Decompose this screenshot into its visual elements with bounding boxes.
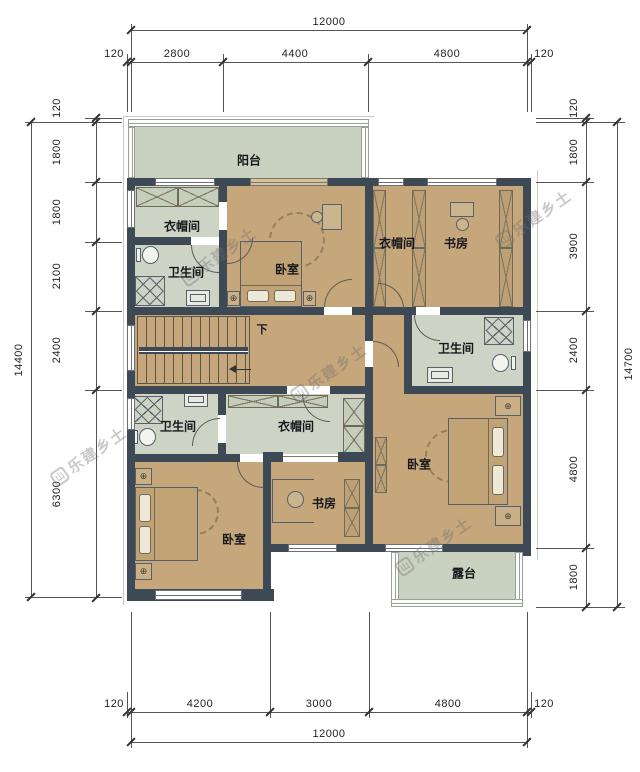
dim-top-seg-0: 120 [104, 48, 124, 60]
chair [287, 491, 304, 508]
window [378, 178, 404, 186]
dimension-line [270, 612, 271, 718]
dimension-line [85, 242, 122, 243]
dimension-line [85, 311, 122, 312]
wall-segment [127, 386, 287, 394]
room-label-cloakroom-nw: 衣帽间 [164, 218, 200, 235]
dimension-line [85, 182, 122, 183]
dimension-line [85, 118, 122, 119]
room-label-cloakroom-south: 衣帽间 [278, 418, 314, 435]
wardrobe [375, 465, 387, 493]
dim-bottom-seg-2: 3000 [306, 698, 332, 710]
wall-segment [127, 307, 324, 315]
dim-right-seg-2: 3900 [568, 233, 580, 259]
wardrobe [178, 187, 219, 207]
nightstand: ⊕ [495, 396, 521, 416]
wardrobe [375, 437, 387, 465]
dimension-line [527, 24, 528, 112]
wardrobe [344, 508, 360, 537]
shower [135, 276, 165, 306]
dim-bottom-overall: 12000 [312, 728, 345, 740]
toilet [492, 354, 516, 372]
wall-segment [218, 394, 226, 415]
dim-left-seg-1: 1800 [51, 139, 63, 165]
window [523, 320, 531, 352]
dimension-line [536, 607, 625, 608]
room-label-bathroom-nw: 卫生间 [168, 264, 204, 281]
room-label-bedroom-sw: 卧室 [222, 531, 246, 548]
wall-segment [127, 237, 191, 245]
window [427, 178, 497, 186]
room-label-bathroom-east: 卫生间 [438, 340, 474, 357]
chair [456, 218, 469, 231]
dimension-line [131, 612, 132, 748]
wall-segment [219, 186, 227, 202]
bed [448, 418, 508, 505]
wardrobe [343, 398, 365, 426]
dimension-tick [91, 593, 100, 602]
dim-right-seg-4: 4800 [568, 456, 580, 482]
dim-left-seg-2: 1800 [51, 199, 63, 225]
wardrobe [343, 426, 365, 454]
nightstand: ⊕ [135, 468, 152, 485]
room-label-bathroom-west: 卫生间 [160, 418, 196, 435]
dim-right-seg-3: 2400 [568, 337, 580, 363]
railing [361, 127, 369, 178]
dim-right-seg-5: 1800 [568, 564, 580, 590]
dimension-line [131, 742, 527, 743]
room-label-terrace: 露台 [452, 565, 476, 582]
dim-left-seg-4: 2400 [51, 337, 63, 363]
dimension-line [25, 122, 122, 123]
room-label-balcony: 阳台 [237, 152, 261, 169]
dimension-line [531, 692, 532, 718]
stairs-direction-arrow [236, 369, 251, 370]
window [127, 325, 135, 371]
dimension-line [96, 118, 97, 598]
sliding-door [250, 178, 328, 186]
wardrobe [499, 248, 513, 307]
dim-top-seg-1: 2800 [164, 48, 190, 60]
wardrobe [136, 187, 178, 207]
dim-bottom-seg-0: 120 [104, 698, 124, 710]
dimension-line [131, 30, 527, 31]
room-label-study-south: 书房 [312, 495, 336, 512]
toilet [133, 428, 157, 446]
dimension-line [536, 122, 625, 123]
dim-left-overall: 14400 [13, 343, 25, 376]
eave-line [123, 116, 374, 117]
dimension-line [369, 612, 370, 718]
window [155, 178, 215, 186]
dimension-line [527, 612, 528, 748]
dim-bottom-seg-1: 4200 [187, 698, 213, 710]
nightstand: ⊕ [135, 563, 152, 580]
toilet [136, 246, 160, 264]
dim-bottom-seg-4: 120 [534, 698, 554, 710]
wall-segment [127, 454, 240, 462]
dimension-line [85, 390, 122, 391]
wardrobe [344, 479, 360, 508]
dimension-line [25, 597, 122, 598]
wall-segment [365, 315, 373, 341]
dimension-line [617, 122, 618, 607]
sink [427, 367, 453, 383]
bed [135, 487, 198, 561]
sink [186, 290, 210, 306]
dim-left-seg-3: 2100 [51, 263, 63, 289]
wall-segment [404, 307, 412, 394]
dimension-line [127, 62, 531, 63]
room-label-study-ne: 书房 [444, 235, 468, 252]
dim-right-overall: 14700 [623, 347, 635, 380]
nightstand: ⊕ [303, 291, 316, 306]
wall-segment [440, 307, 531, 315]
wardrobe [228, 395, 278, 408]
chair [311, 211, 323, 223]
wardrobe [412, 248, 426, 307]
wall-segment [263, 452, 271, 601]
dim-top-seg-3: 4800 [434, 48, 460, 60]
stairs-direction-arrow-head [229, 365, 236, 373]
wall-segment [404, 386, 531, 394]
window [288, 544, 337, 552]
dim-left-seg-0: 120 [51, 98, 63, 118]
shower [133, 396, 163, 424]
dimension-line [31, 122, 32, 597]
stairs-down-label: 下 [257, 321, 268, 337]
railing [128, 127, 135, 178]
eave-line [123, 116, 124, 605]
desk [450, 202, 474, 217]
shower [484, 317, 514, 345]
dim-top-seg-2: 4400 [282, 48, 308, 60]
railing [391, 599, 523, 607]
room-label-bedroom-se: 卧室 [407, 456, 431, 473]
dim-top-seg-4: 120 [534, 48, 554, 60]
dim-bottom-seg-3: 4800 [435, 698, 461, 710]
floorplan-canvas: ⊕⊕⊕⊕⊕⊕ 12000 120 2800 4400 4800 120 120 … [0, 0, 640, 772]
nightstand: ⊕ [227, 291, 240, 306]
wall-segment [338, 452, 373, 462]
wall-segment [330, 386, 373, 394]
room-label-bedroom-north: 卧室 [275, 261, 299, 278]
window [127, 190, 135, 228]
sink [184, 392, 208, 407]
dimension-line [131, 24, 132, 112]
dimension-line [586, 118, 587, 607]
wall-opening-line [283, 456, 338, 457]
dim-right-seg-0: 120 [568, 98, 580, 118]
desk [322, 204, 342, 230]
dimension-line [127, 712, 531, 713]
dim-right-seg-1: 1800 [568, 139, 580, 165]
wall-segment [365, 186, 373, 307]
nightstand: ⊕ [495, 506, 521, 526]
railing [128, 119, 369, 127]
window [127, 398, 135, 430]
staircase-handrail [139, 347, 248, 354]
dim-top-overall: 12000 [312, 16, 345, 28]
window [155, 590, 242, 600]
room-label-cloakroom-ne: 衣帽间 [379, 235, 415, 252]
